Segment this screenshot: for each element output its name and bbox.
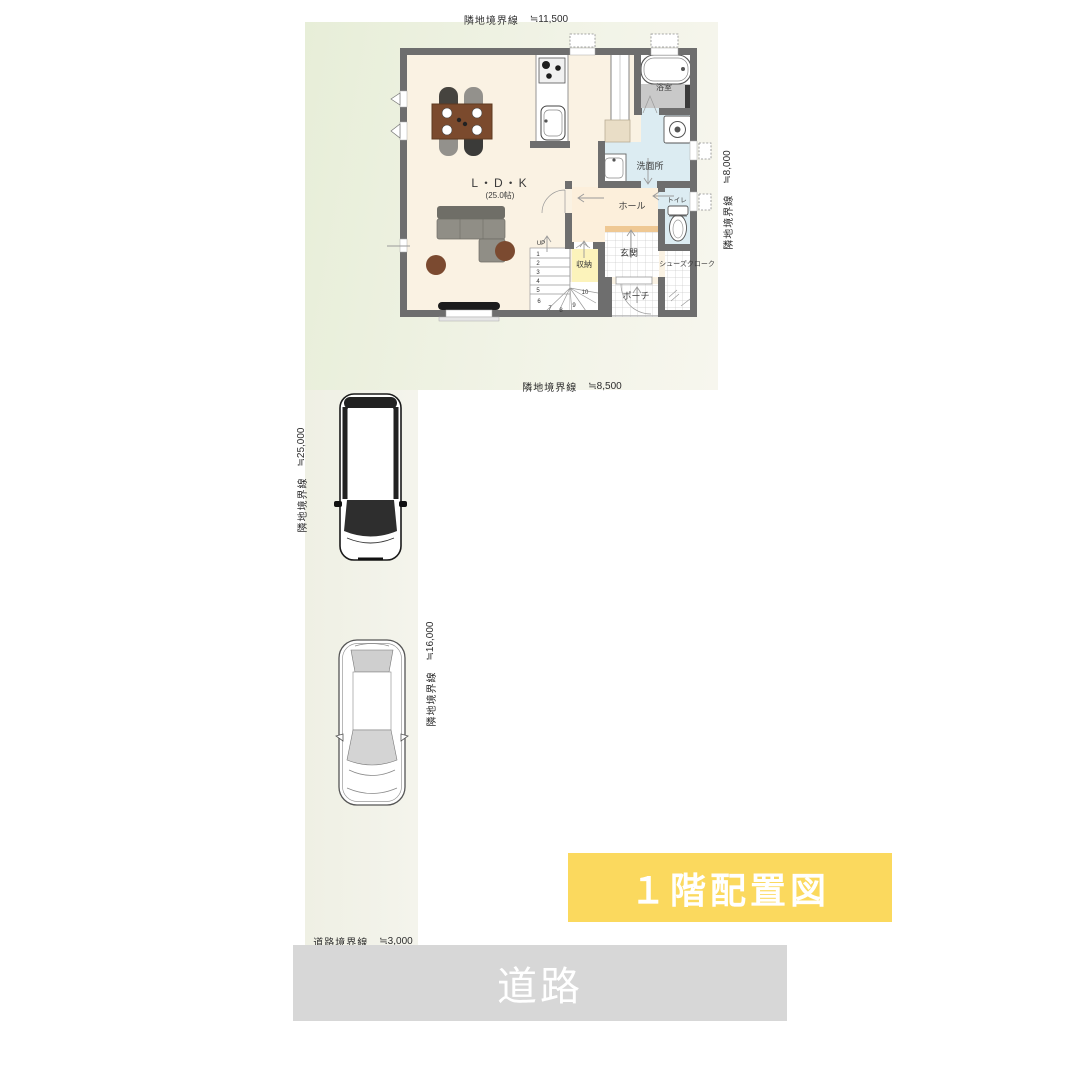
label-hall: ホール (618, 201, 645, 211)
window (400, 122, 407, 140)
ottoman (495, 241, 515, 261)
entrance-door (616, 277, 652, 284)
kitchen-sink-icon (541, 106, 565, 140)
site-plan-page: L・D・K (25.0帖) 浴室 洗面所 ホール トイレ 収納 玄関 シューズク… (0, 0, 1080, 1080)
boundary-label-top: 隣地境界線 ≒11,500 (446, 12, 586, 26)
house-floorplan: L・D・K (25.0帖) 浴室 洗面所 ホール トイレ 収納 玄関 シューズク… (387, 34, 715, 321)
washing-machine-icon (664, 116, 691, 143)
boundary-name: 隣地境界線 (464, 12, 519, 27)
label-ldk: L・D・K (471, 176, 528, 190)
sedan-top-view (336, 640, 408, 805)
toilet-icon (668, 206, 688, 241)
bathtub-icon (641, 55, 691, 84)
door-gap (658, 192, 665, 209)
label-bath: 浴室 (656, 82, 672, 92)
door-gap (565, 189, 572, 213)
label-toilet: トイレ (667, 197, 687, 204)
boundary-label-left: 隣地境界線 ≒25,000 (294, 410, 308, 550)
window (400, 239, 407, 252)
counter-box (605, 120, 630, 142)
label-storage: 収納 (576, 259, 592, 269)
window-dashed-box (699, 194, 711, 210)
boundary-label-driveway: 隣地境界線 ≒16,000 (423, 604, 437, 744)
label-washroom: 洗面所 (636, 160, 663, 171)
room-hall-corridor (572, 226, 605, 243)
road-band: 道路 (293, 945, 787, 1021)
window-sill (439, 317, 499, 321)
window (651, 48, 678, 55)
window-dashed-box (570, 34, 595, 47)
label-shoe-closet: シューズクローク (659, 259, 715, 268)
window (446, 310, 492, 317)
stair-number: 10 (582, 290, 589, 296)
boundary-value: ≒8,500 (588, 381, 621, 392)
minivan-top-view (334, 394, 407, 561)
boundary-value: ≒11,500 (530, 14, 568, 25)
boundary-name: 隣地境界線 (294, 478, 309, 533)
boundary-name: 隣地境界線 (423, 672, 438, 727)
label-porch: ポーチ (622, 291, 649, 301)
page-title: １階配置図 (630, 862, 830, 914)
boundary-label-middle: 隣地境界線 ≒8,500 (502, 379, 642, 393)
boundary-name: 隣地境界線 (720, 195, 735, 250)
window (690, 141, 697, 160)
dining-table (432, 104, 492, 139)
tv-board (438, 302, 500, 310)
boundary-value: ≒16,000 (425, 622, 436, 661)
window-dashed-box (651, 34, 678, 47)
boundary-label-right: 隣地境界線 ≒8,000 (720, 130, 734, 270)
label-stairs-up: UP (537, 241, 545, 247)
boundary-value: ≒8,000 (722, 150, 733, 183)
room-hall (572, 187, 659, 226)
title-banner: １階配置図 (568, 853, 892, 922)
window (570, 48, 595, 55)
window (400, 91, 407, 107)
stove-icon (539, 58, 565, 83)
window (690, 192, 697, 211)
label-entrance: 玄関 (620, 247, 638, 258)
road-label: 道路 (497, 954, 583, 1012)
floor-plan-drawing: L・D・K (25.0帖) 浴室 洗面所 ホール トイレ 収納 玄関 シューズク… (0, 0, 1080, 1080)
label-ldk-size: (25.0帖) (486, 190, 515, 200)
washbasin-icon (602, 154, 626, 182)
boundary-value: ≒25,000 (296, 428, 307, 467)
window-dashed-box (699, 143, 711, 159)
boundary-name: 隣地境界線 (522, 379, 577, 394)
ottoman (426, 255, 446, 275)
kitchen-counter (536, 54, 568, 143)
